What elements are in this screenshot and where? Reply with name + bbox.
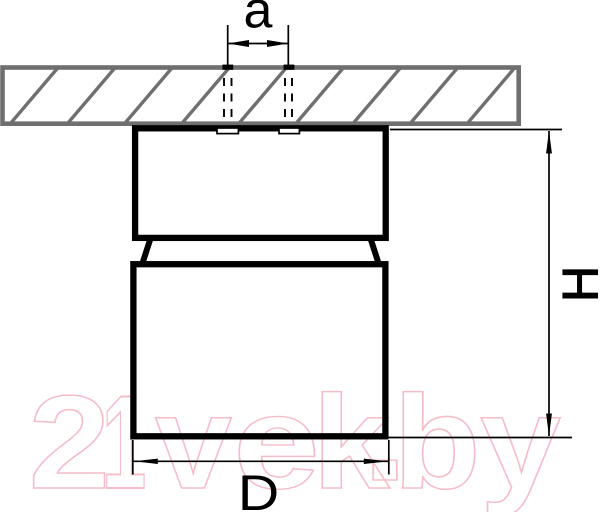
svg-text:D: D bbox=[238, 465, 280, 512]
svg-text:v: v bbox=[155, 367, 232, 512]
svg-text:H: H bbox=[553, 266, 600, 302]
svg-text:1: 1 bbox=[102, 369, 147, 512]
svg-text:b: b bbox=[393, 369, 480, 512]
svg-text:a: a bbox=[244, 0, 273, 40]
svg-text:2: 2 bbox=[29, 368, 111, 512]
